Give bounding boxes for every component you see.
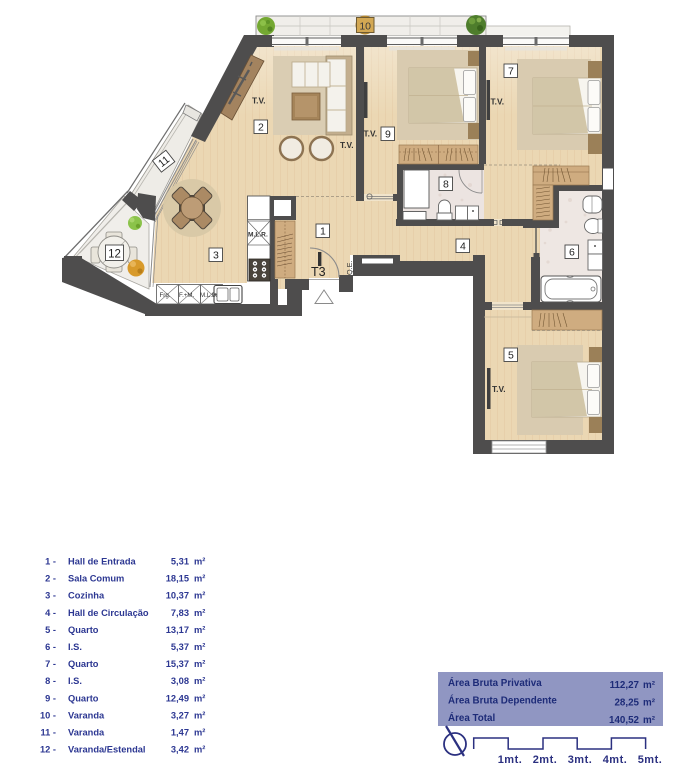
svg-text:m²: m²	[194, 745, 205, 755]
svg-text:T.V.: T.V.	[252, 96, 266, 106]
svg-text:I.S.: I.S.	[68, 642, 82, 652]
svg-text:T3: T3	[311, 265, 326, 279]
svg-text:m²: m²	[194, 591, 205, 601]
svg-text:Quarto: Quarto	[68, 659, 99, 669]
svg-text:140,52: 140,52	[609, 715, 640, 726]
svg-text:10: 10	[359, 21, 371, 33]
svg-text:m²: m²	[194, 625, 205, 635]
svg-text:M.L.L.: M.L.L.	[200, 292, 217, 299]
svg-text:4mt.: 4mt.	[603, 754, 628, 766]
svg-text:12,49: 12,49	[166, 693, 189, 703]
svg-text:m²: m²	[194, 659, 205, 669]
svg-text:4 -: 4 -	[45, 608, 56, 618]
svg-text:12: 12	[108, 249, 121, 261]
svg-text:F.+M.: F.+M.	[179, 292, 195, 299]
svg-text:5: 5	[508, 350, 514, 362]
svg-text:Cozinha: Cozinha	[68, 591, 105, 601]
svg-text:3,27: 3,27	[171, 710, 189, 720]
svg-text:m²: m²	[194, 642, 205, 652]
svg-text:Sala Comum: Sala Comum	[68, 574, 124, 584]
svg-text:1: 1	[320, 226, 326, 238]
svg-text:m²: m²	[194, 676, 205, 686]
svg-text:Hall de Entrada: Hall de Entrada	[68, 557, 137, 567]
svg-text:Varanda: Varanda	[68, 728, 105, 738]
svg-text:1 -: 1 -	[45, 557, 56, 567]
svg-text:Varanda/Estendal: Varanda/Estendal	[68, 745, 146, 755]
svg-text:T.V.: T.V.	[340, 140, 354, 150]
svg-text:7 -: 7 -	[45, 659, 56, 669]
svg-text:3: 3	[213, 250, 219, 262]
svg-text:m²: m²	[643, 680, 656, 691]
svg-text:m²: m²	[194, 557, 205, 567]
svg-text:7,83: 7,83	[171, 608, 189, 618]
svg-text:3 -: 3 -	[45, 591, 56, 601]
svg-text:T.V.: T.V.	[492, 384, 506, 394]
svg-text:8 -: 8 -	[45, 676, 56, 686]
svg-text:m²: m²	[643, 698, 656, 709]
svg-text:15,37: 15,37	[166, 659, 189, 669]
svg-text:112,27: 112,27	[610, 680, 640, 691]
svg-text:6 -: 6 -	[45, 642, 56, 652]
svg-text:18,15: 18,15	[166, 574, 189, 584]
svg-text:m²: m²	[194, 728, 205, 738]
svg-text:3,08: 3,08	[171, 676, 189, 686]
svg-text:T.V.: T.V.	[364, 129, 378, 139]
svg-text:10,37: 10,37	[166, 591, 189, 601]
svg-text:2 -: 2 -	[45, 574, 56, 584]
svg-text:5,37: 5,37	[171, 642, 189, 652]
svg-text:12 -: 12 -	[40, 745, 56, 755]
svg-text:m²: m²	[194, 710, 205, 720]
svg-text:13,17: 13,17	[166, 625, 189, 635]
svg-text:M.L.R.: M.L.R.	[248, 232, 268, 239]
svg-text:T.V.: T.V.	[491, 97, 505, 107]
svg-text:5,31: 5,31	[171, 557, 189, 567]
svg-text:m²: m²	[194, 574, 205, 584]
svg-text:9: 9	[385, 129, 391, 141]
svg-text:m²: m²	[194, 693, 205, 703]
svg-text:3,42: 3,42	[171, 745, 189, 755]
svg-text:6: 6	[569, 247, 575, 259]
svg-text:Q.E.: Q.E.	[345, 261, 354, 275]
svg-text:Área Total: Área Total	[448, 712, 495, 724]
svg-text:2: 2	[258, 122, 264, 134]
svg-text:5mt.: 5mt.	[638, 754, 663, 766]
svg-text:I.S.: I.S.	[68, 676, 82, 686]
svg-text:Área Bruta Privativa: Área Bruta Privativa	[448, 677, 542, 689]
svg-text:Varanda: Varanda	[68, 710, 105, 720]
svg-text:9 -: 9 -	[45, 693, 56, 703]
svg-text:2mt.: 2mt.	[533, 754, 558, 766]
svg-text:Quarto: Quarto	[68, 693, 99, 703]
svg-text:4: 4	[460, 241, 466, 253]
svg-text:8: 8	[443, 179, 449, 191]
svg-text:Frg.: Frg.	[160, 292, 171, 299]
svg-text:3mt.: 3mt.	[568, 754, 593, 766]
svg-text:10 -: 10 -	[40, 710, 56, 720]
svg-text:11 -: 11 -	[40, 728, 56, 738]
svg-text:5 -: 5 -	[45, 625, 56, 635]
svg-text:m²: m²	[643, 715, 656, 726]
svg-text:7: 7	[508, 66, 514, 78]
svg-text:28,25: 28,25	[614, 698, 639, 709]
svg-text:1,47: 1,47	[171, 728, 189, 738]
svg-text:1mt.: 1mt.	[498, 754, 523, 766]
svg-text:m²: m²	[194, 608, 205, 618]
svg-text:Hall de Circulação: Hall de Circulação	[68, 608, 149, 618]
svg-text:Área Bruta Dependente: Área Bruta Dependente	[448, 695, 557, 707]
svg-text:Quarto: Quarto	[68, 625, 99, 635]
